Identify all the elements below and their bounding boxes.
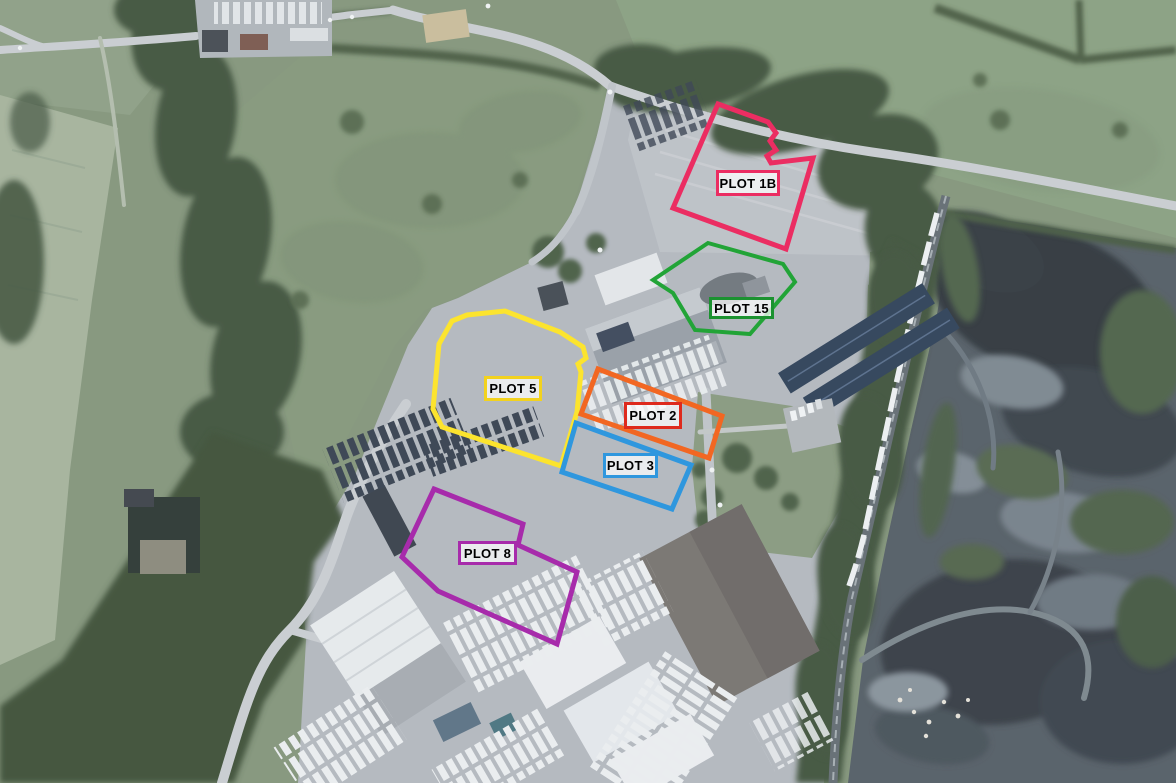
aerial-photo [0, 0, 1176, 783]
aerial-site-plan: PLOT 1BPLOT 15PLOT 5PLOT 2PLOT 3PLOT 8 [0, 0, 1176, 783]
